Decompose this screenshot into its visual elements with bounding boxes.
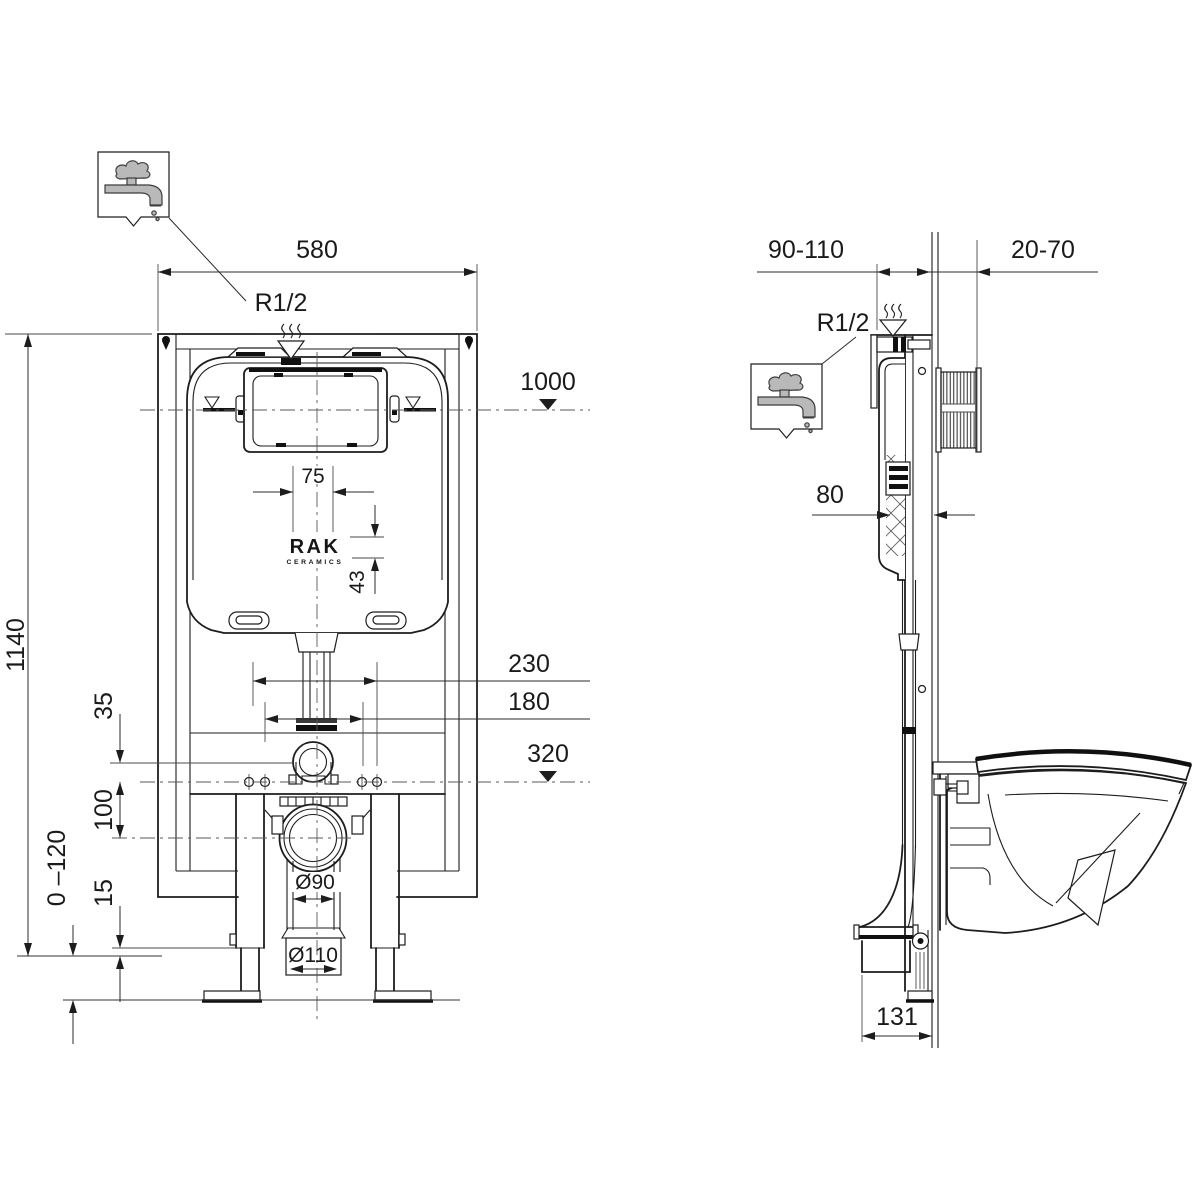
dim-outlet-offset: 131 [862, 1003, 932, 1040]
level-marker-320: 320 [527, 740, 569, 782]
water-supply-callout-side: R1/2 [751, 309, 869, 438]
front-view: 580 R1/2 1000 320 75 RAK CERAMICS [2, 152, 590, 1044]
dim-frame-height: 1140 [2, 334, 32, 956]
mounting-hole-left [162, 336, 170, 350]
finish-range-label: 20-70 [1011, 236, 1075, 264]
inlet-thread-label: R1/2 [255, 289, 308, 317]
water-supply-callout: R1/2 [98, 152, 307, 317]
toilet-pan [933, 751, 1191, 933]
brand-logo: RAK CERAMICS [284, 532, 348, 568]
brand-sub: CERAMICS [286, 559, 343, 566]
dim-outlet-diameter: Ø110 [288, 944, 338, 973]
dim-frame-width-label: 580 [296, 236, 338, 264]
dim-adjust-range: 0 –120 [43, 830, 77, 1044]
dim-frame-width: 580 [158, 236, 477, 331]
access-offset-label: 75 [301, 465, 324, 488]
flush-bend [289, 742, 338, 784]
brand-name: RAK [290, 536, 341, 558]
adjust-range-label: 0 –120 [43, 830, 71, 906]
bend-offset-label: 35 [90, 692, 118, 720]
level-marker-1000: 1000 [520, 368, 576, 410]
side-view: 90-110 20-70 R1/2 80 131 [751, 232, 1191, 1048]
spacing-inner-label: 180 [508, 688, 550, 716]
flush-pipe [295, 633, 338, 731]
wall-range-label: 90-110 [768, 236, 844, 264]
logo-offset-label: 43 [346, 570, 369, 593]
tank-depth-label: 80 [816, 481, 844, 509]
drain-diameter-label: Ø90 [295, 871, 335, 894]
mounting-hole-right [465, 336, 473, 350]
upper-level-label: 1000 [520, 368, 576, 396]
dim-foot-clearance: 15 [90, 879, 124, 1002]
flush-pipe-side [854, 580, 919, 1042]
foot-clearance-label: 15 [90, 879, 118, 907]
lower-level-label: 320 [527, 740, 569, 768]
inlet-thread-side-label: R1/2 [817, 309, 870, 337]
tank-clip-right [390, 396, 399, 422]
dim-drain-offset: 100 [90, 782, 124, 838]
outlet-offset-label: 131 [876, 1003, 918, 1031]
outlet-diameter-label: Ø110 [288, 944, 338, 967]
drain-offset-label: 100 [90, 789, 118, 831]
flush-plate-box [936, 368, 981, 452]
dim-bend-offset: 35 [90, 692, 124, 763]
spacing-outer-label: 230 [508, 650, 550, 678]
technical-drawing: 580 R1/2 1000 320 75 RAK CERAMICS [0, 0, 1200, 1200]
frame-height-label: 1140 [2, 618, 30, 672]
